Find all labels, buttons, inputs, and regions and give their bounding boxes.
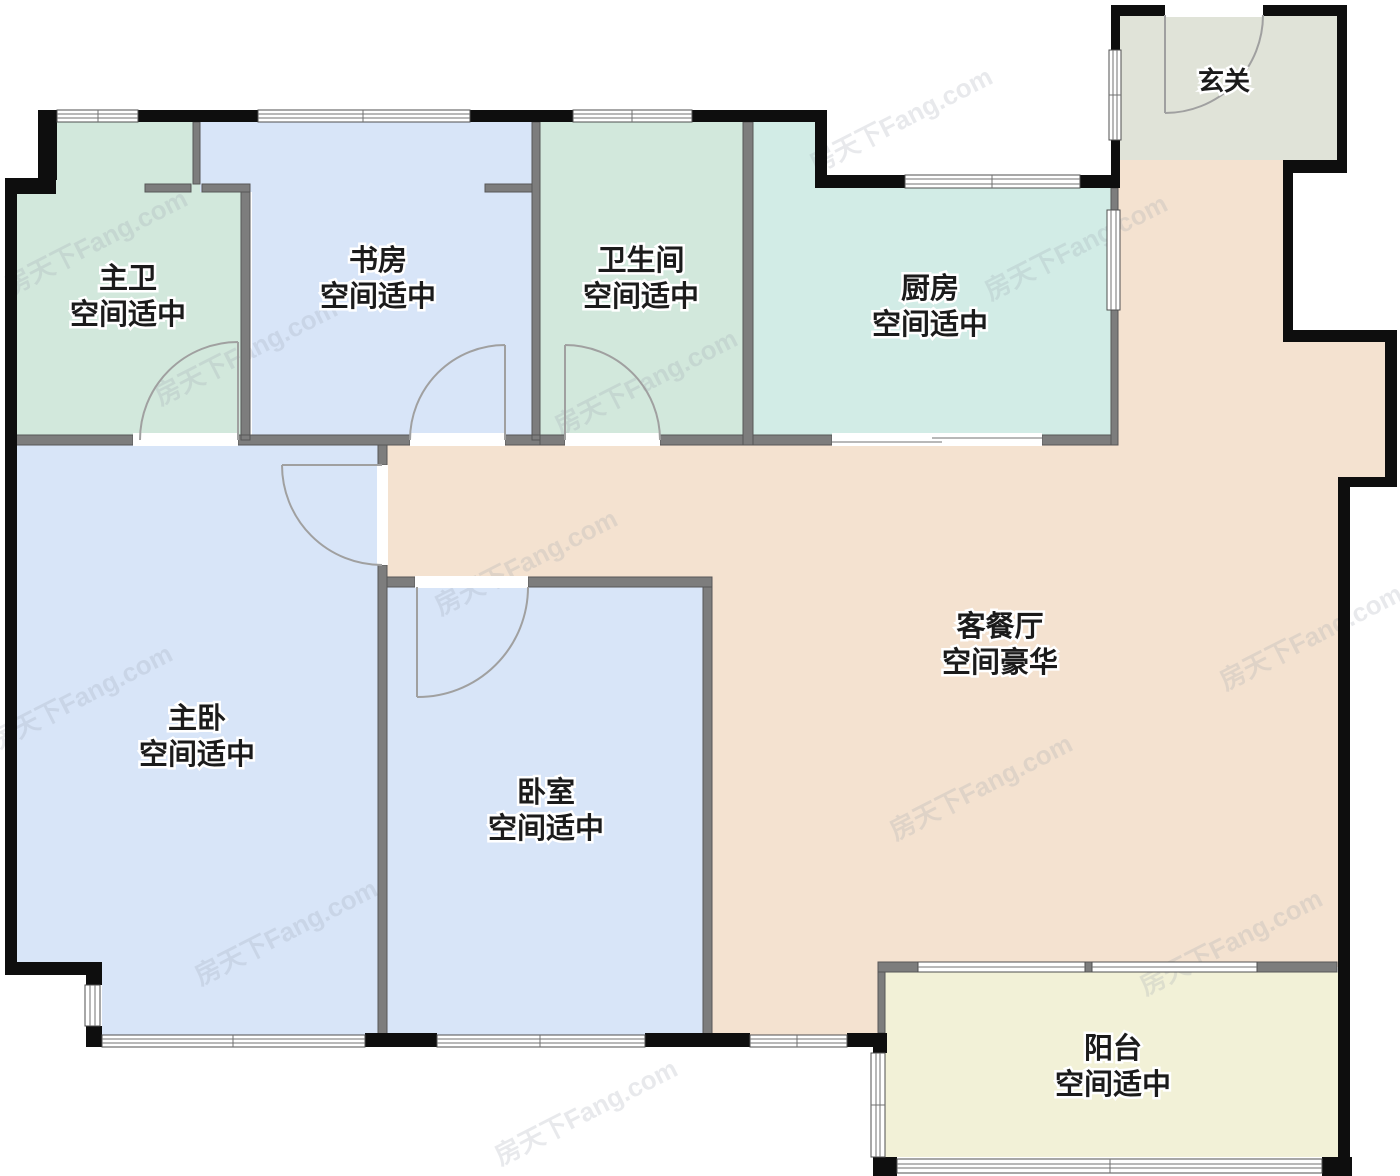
window bbox=[573, 110, 692, 122]
floor-plan: 房天下Fang.com 房天下Fang.com 房天下Fang.com 房天下F… bbox=[0, 0, 1400, 1176]
svg-text:厨房: 厨房 bbox=[901, 272, 959, 305]
window bbox=[85, 985, 100, 1026]
svg-text:主卧: 主卧 bbox=[168, 702, 226, 735]
window bbox=[437, 1035, 645, 1047]
svg-text:客餐厅: 客餐厅 bbox=[956, 609, 1043, 643]
svg-text:空间适中: 空间适中 bbox=[583, 279, 699, 313]
room-bedroom-floor bbox=[387, 587, 705, 1035]
window bbox=[1107, 210, 1120, 310]
svg-text:玄关: 玄关 bbox=[1198, 66, 1250, 96]
svg-text:卫生间: 卫生间 bbox=[597, 244, 684, 277]
window bbox=[871, 1053, 885, 1157]
svg-text:空间豪华: 空间豪华 bbox=[942, 645, 1058, 679]
room-entry-label: 玄关 bbox=[1198, 66, 1250, 96]
svg-text:空间适中: 空间适中 bbox=[488, 811, 604, 845]
svg-text:卧室: 卧室 bbox=[517, 775, 575, 809]
window bbox=[750, 1035, 847, 1047]
watermark-text: 房天下Fang.com bbox=[490, 1053, 683, 1171]
floor-plan-page: 房天下Fang.com 房天下Fang.com 房天下Fang.com 房天下F… bbox=[0, 0, 1400, 1176]
window bbox=[905, 175, 1080, 188]
svg-text:书房: 书房 bbox=[349, 244, 407, 277]
window bbox=[1092, 962, 1257, 972]
window bbox=[1109, 50, 1121, 140]
window bbox=[57, 110, 138, 122]
watermark-text: 房天下Fang.com bbox=[805, 61, 998, 179]
window bbox=[918, 962, 1085, 972]
svg-text:空间适中: 空间适中 bbox=[1055, 1067, 1171, 1101]
svg-text:空间适中: 空间适中 bbox=[70, 297, 186, 331]
svg-text:空间适中: 空间适中 bbox=[139, 737, 255, 771]
svg-text:空间适中: 空间适中 bbox=[872, 307, 988, 341]
window bbox=[897, 1159, 1322, 1173]
svg-text:主卫: 主卫 bbox=[99, 262, 157, 295]
svg-text:空间适中: 空间适中 bbox=[320, 279, 436, 313]
window bbox=[102, 1035, 365, 1047]
svg-text:阳台: 阳台 bbox=[1084, 1031, 1142, 1065]
kitchen-sliding-door bbox=[832, 433, 1042, 446]
window bbox=[258, 110, 470, 122]
